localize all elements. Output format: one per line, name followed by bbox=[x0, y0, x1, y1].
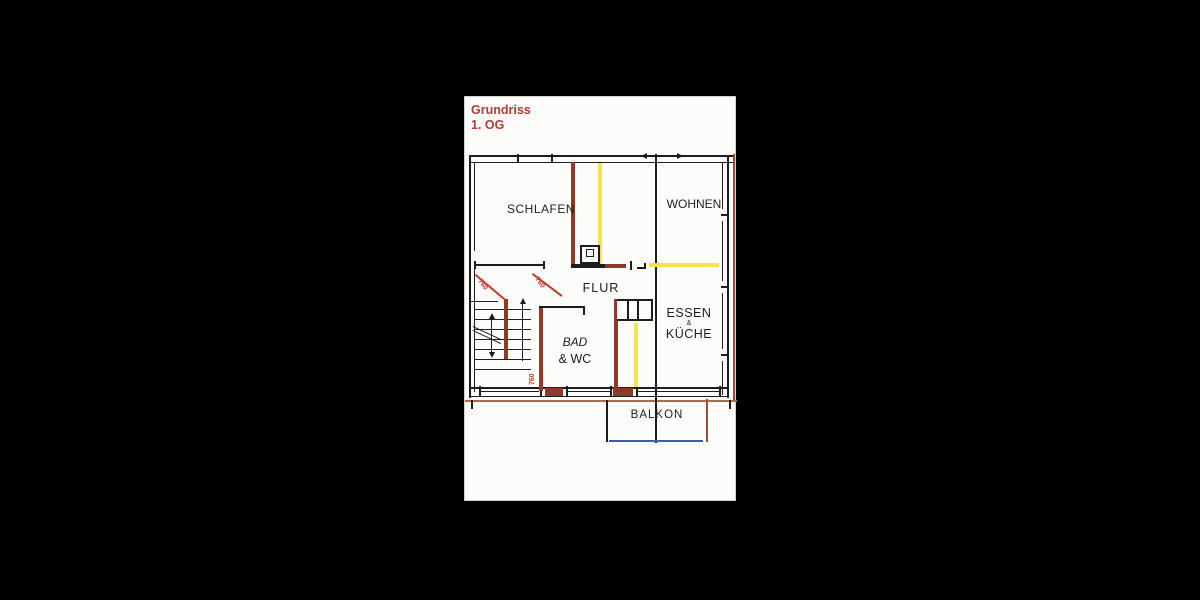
window-tick bbox=[566, 386, 568, 396]
window-tick bbox=[721, 214, 729, 216]
highlight-line-yellow bbox=[649, 263, 719, 267]
scan-edge-line bbox=[733, 154, 735, 400]
wall-segment bbox=[469, 155, 733, 157]
dimension-annotation: 760 bbox=[476, 278, 489, 292]
stair-wall-brown bbox=[504, 299, 508, 359]
window-tick bbox=[721, 354, 729, 356]
facade-line bbox=[465, 400, 737, 402]
window-tick bbox=[517, 154, 519, 163]
dimension-annotation: 760 bbox=[533, 276, 546, 290]
wall-segment bbox=[469, 387, 729, 389]
wall-fill-brown bbox=[539, 308, 543, 391]
wall-segment bbox=[539, 306, 585, 308]
window-tick bbox=[551, 154, 553, 163]
door-jamb bbox=[474, 261, 476, 269]
wall-segment bbox=[469, 155, 471, 398]
window-tick bbox=[610, 386, 612, 396]
window-tick bbox=[479, 386, 481, 396]
balcony-edge-blue bbox=[609, 440, 703, 442]
door-jamb bbox=[630, 261, 632, 270]
room-label-kueche: KÜCHE bbox=[661, 327, 717, 341]
stair-arrow-head-icon bbox=[520, 298, 526, 304]
room-label-schlafen: SCHLAFEN bbox=[505, 202, 577, 216]
stair-tread bbox=[470, 301, 498, 302]
dimension-arrow-icon bbox=[677, 153, 683, 159]
wall-segment bbox=[655, 155, 657, 443]
window-line bbox=[567, 391, 611, 392]
wall-segment bbox=[471, 162, 733, 163]
door-jamb bbox=[543, 261, 545, 269]
room-label-essen: ESSEN bbox=[661, 306, 717, 320]
shaft-symbol bbox=[617, 299, 653, 321]
room-label-flur: FLUR bbox=[581, 281, 621, 295]
wall-segment bbox=[474, 162, 475, 251]
wall-fill-brown bbox=[613, 388, 633, 396]
shaft-divider bbox=[627, 301, 629, 319]
wall-fill-brown bbox=[605, 264, 626, 268]
wall-fill-brown bbox=[545, 388, 563, 396]
stair-arrow-head-icon bbox=[489, 352, 495, 358]
door-jamb bbox=[583, 308, 585, 315]
wall-segment bbox=[722, 221, 723, 281]
wall-segment bbox=[469, 396, 729, 398]
window-tick bbox=[719, 386, 721, 396]
dimension-arrow-icon bbox=[641, 153, 647, 159]
room-label-essen-amp: & bbox=[661, 320, 717, 327]
window-tick bbox=[721, 286, 729, 288]
shaft-divider bbox=[637, 301, 639, 319]
stair-arrow-head-icon bbox=[489, 313, 495, 319]
window-line bbox=[481, 391, 539, 392]
room-label-balkon: BALKON bbox=[625, 409, 689, 421]
balcony-side-line bbox=[606, 400, 608, 442]
wall-segment bbox=[722, 361, 723, 395]
wall-segment bbox=[722, 293, 723, 349]
stair-tread bbox=[475, 369, 531, 370]
wall-segment bbox=[471, 400, 473, 409]
window-tick bbox=[636, 386, 638, 396]
floor-plan-drawing: 760 760 760 SCHLAFEN WOHNEN FLUR BAD & W… bbox=[465, 97, 737, 502]
wall-segment bbox=[571, 264, 605, 268]
room-label-bad: BAD bbox=[557, 335, 593, 349]
highlight-line-yellow bbox=[634, 323, 638, 387]
dimension-annotation: 760 bbox=[529, 373, 536, 385]
stair-arrow bbox=[522, 303, 523, 361]
scanned-floor-plan-page: Grundriss 1. OG bbox=[464, 96, 736, 501]
door-jamb bbox=[644, 263, 646, 269]
window-line bbox=[637, 391, 719, 392]
wall-segment bbox=[474, 264, 545, 266]
balcony-side-line bbox=[706, 399, 708, 442]
chimney-flue bbox=[586, 249, 594, 257]
wall-segment bbox=[729, 400, 731, 409]
room-label-wc: & WC bbox=[553, 352, 597, 366]
room-label-wohnen: WOHNEN bbox=[663, 197, 725, 211]
wall-segment bbox=[727, 155, 729, 398]
